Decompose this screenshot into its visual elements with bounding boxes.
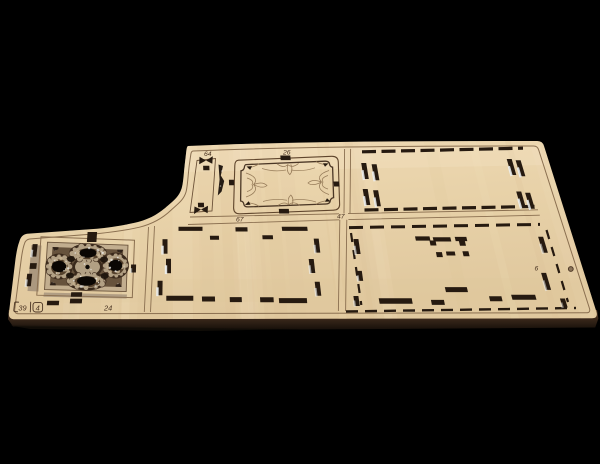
svg-text:47: 47	[337, 214, 345, 221]
svg-text:6: 6	[535, 266, 539, 273]
svg-text:26: 26	[282, 150, 291, 157]
svg-text:67: 67	[236, 217, 244, 224]
svg-text:4: 4	[36, 304, 40, 313]
svg-text:24: 24	[103, 304, 112, 313]
svg-text:39: 39	[18, 303, 26, 312]
svg-text:64: 64	[204, 151, 212, 158]
